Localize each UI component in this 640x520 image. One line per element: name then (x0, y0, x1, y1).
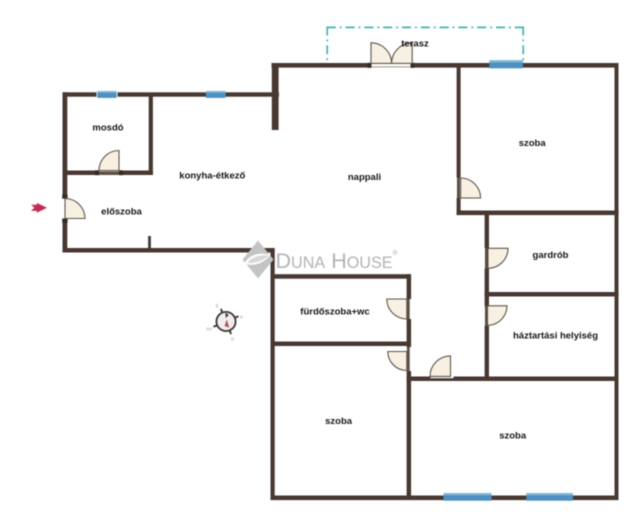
svg-text:fürdőszoba+wc: fürdőszoba+wc (300, 306, 369, 317)
svg-text:mosdó: mosdó (92, 123, 123, 134)
svg-text:NY: NY (207, 327, 213, 332)
svg-text:szoba: szoba (499, 430, 527, 441)
svg-text:D: D (231, 337, 234, 342)
svg-text:terasz: terasz (401, 38, 429, 49)
svg-text:nappali: nappali (348, 172, 381, 183)
svg-text:szoba: szoba (325, 416, 353, 427)
svg-text:háztartási helyiség: háztartási helyiség (513, 331, 598, 342)
svg-text:szoba: szoba (519, 138, 547, 149)
svg-text:előszoba: előszoba (101, 207, 142, 218)
svg-text:konyha-étkező: konyha-étkező (179, 170, 245, 181)
svg-text:®: ® (393, 250, 398, 257)
svg-text:gardrób: gardrób (533, 250, 569, 261)
svg-text:É: É (216, 304, 219, 309)
svg-text:K: K (240, 315, 243, 320)
